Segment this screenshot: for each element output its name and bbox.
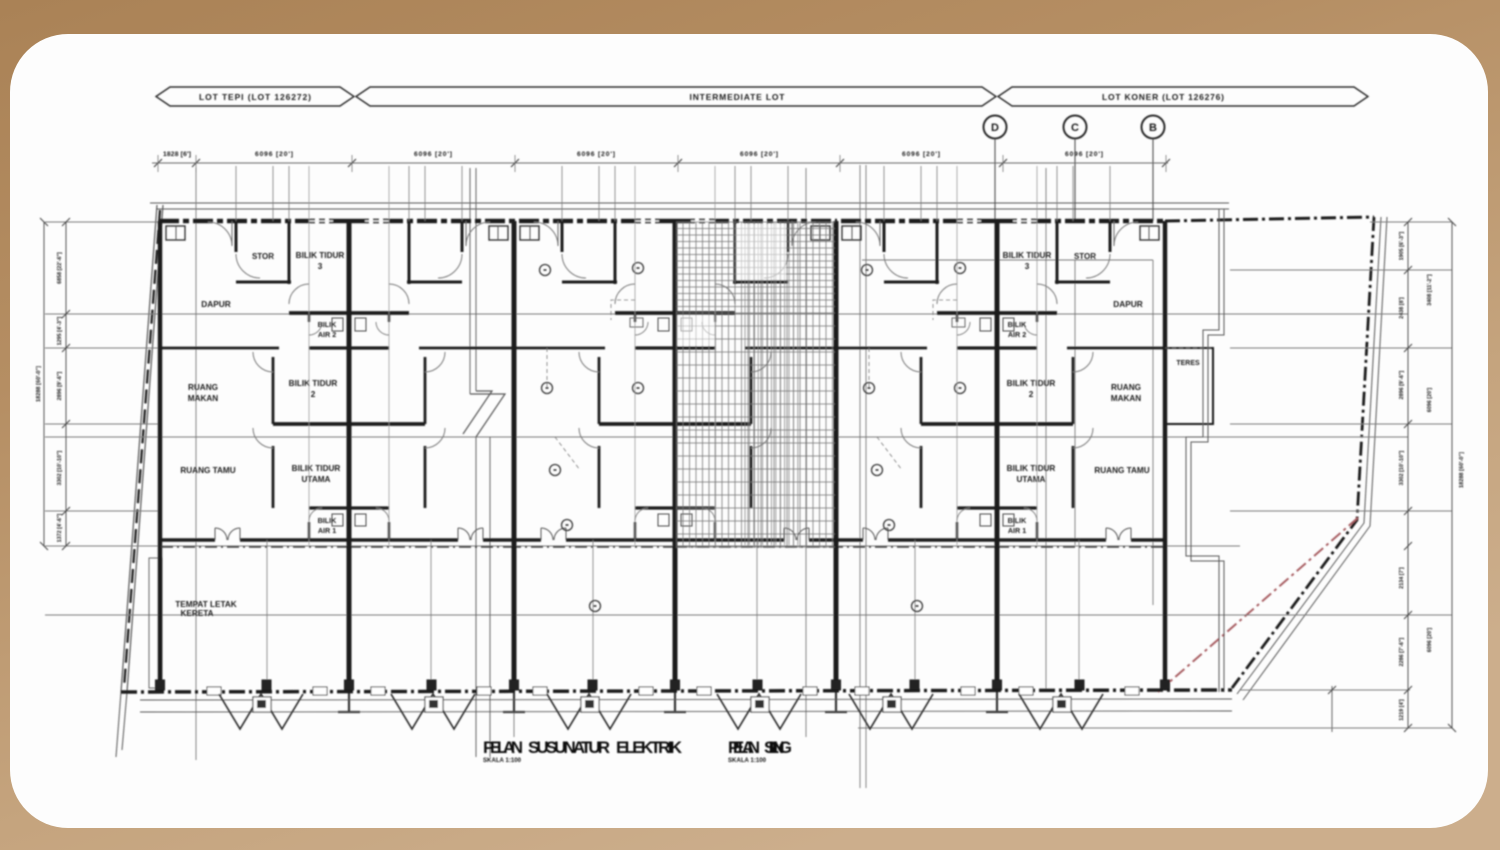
- svg-text:KERETA: KERETA: [180, 609, 213, 618]
- svg-text:6096 [20']: 6096 [20']: [740, 151, 778, 158]
- svg-text:1219 [4']: 1219 [4']: [1399, 699, 1405, 721]
- svg-text:UTAMA: UTAMA: [302, 475, 331, 484]
- svg-text:DAPUR: DAPUR: [1113, 299, 1143, 309]
- svg-text:SKALA 1:100: SKALA 1:100: [483, 758, 522, 764]
- svg-text:6096 [20']: 6096 [20']: [1065, 151, 1103, 158]
- svg-text:AIR 2: AIR 2: [318, 330, 336, 339]
- svg-text:BILIK TIDUR: BILIK TIDUR: [1007, 379, 1056, 388]
- svg-text:1295 [4'-3"]: 1295 [4'-3"]: [57, 316, 63, 345]
- svg-text:2: 2: [1029, 390, 1034, 399]
- svg-text:BILIK: BILIK: [1008, 516, 1028, 525]
- svg-text:PELAN: PELAN: [483, 738, 523, 757]
- svg-text:BILIK TIDUR: BILIK TIDUR: [289, 379, 338, 388]
- svg-text:2438 [8']: 2438 [8']: [1399, 297, 1405, 319]
- svg-text:3302 [10'-10"]: 3302 [10'-10"]: [1399, 450, 1405, 485]
- svg-text:1372 [4'-6"]: 1372 [4'-6"]: [57, 513, 63, 542]
- svg-text:6096 [20']: 6096 [20']: [902, 151, 940, 158]
- svg-text:6096 [20']: 6096 [20']: [1427, 388, 1433, 413]
- svg-text:3: 3: [1025, 262, 1030, 271]
- svg-text:B: B: [1149, 122, 1157, 134]
- svg-text:SKALA 1:100: SKALA 1:100: [728, 758, 767, 764]
- svg-text:AIR 1: AIR 1: [1008, 526, 1026, 535]
- svg-text:LOT TEPI (LOT 126272): LOT TEPI (LOT 126272): [199, 92, 311, 102]
- svg-text:3302 [10'-10"]: 3302 [10'-10"]: [57, 450, 63, 485]
- svg-text:2: 2: [311, 390, 316, 399]
- svg-text:2134 [7']: 2134 [7']: [1399, 567, 1405, 589]
- svg-text:STOR: STOR: [1074, 252, 1096, 261]
- svg-text:RUANG: RUANG: [1111, 383, 1141, 392]
- svg-text:1828 [6']: 1828 [6']: [163, 151, 191, 158]
- svg-text:ELEKTRIK: ELEKTRIK: [616, 738, 683, 757]
- svg-text:RUANG TAMU: RUANG TAMU: [180, 466, 235, 475]
- svg-text:2896 [9'-6"]: 2896 [9'-6"]: [1399, 370, 1405, 399]
- svg-text:2896 [9'-6"]: 2896 [9'-6"]: [57, 371, 63, 400]
- svg-text:SILING: SILING: [764, 738, 792, 757]
- svg-text:D: D: [991, 122, 999, 134]
- svg-text:BILIK TIDUR: BILIK TIDUR: [292, 464, 341, 473]
- svg-text:C: C: [1071, 122, 1079, 134]
- svg-text:RUANG: RUANG: [188, 383, 218, 392]
- svg-text:TEMPAT LETAK: TEMPAT LETAK: [175, 600, 236, 609]
- svg-text:BILIK: BILIK: [318, 516, 338, 525]
- svg-text:BILIK TIDUR: BILIK TIDUR: [1003, 251, 1052, 260]
- svg-text:INTERMEDIATE LOT: INTERMEDIATE LOT: [690, 92, 786, 102]
- svg-text:6096 [20']: 6096 [20']: [577, 151, 615, 158]
- svg-text:LOT KONER (LOT 126276): LOT KONER (LOT 126276): [1102, 92, 1224, 102]
- svg-text:18288 [60'-0"]: 18288 [60'-0"]: [36, 366, 42, 402]
- svg-text:AIR 2: AIR 2: [1008, 330, 1026, 339]
- svg-text:6096 [20']: 6096 [20']: [414, 151, 452, 158]
- svg-text:STOR: STOR: [252, 252, 274, 261]
- svg-text:UTAMA: UTAMA: [1017, 475, 1046, 484]
- svg-text:BILIK: BILIK: [1008, 320, 1028, 329]
- svg-text:RUANG TAMU: RUANG TAMU: [1094, 466, 1149, 475]
- svg-text:18288 [60'-0"]: 18288 [60'-0"]: [1459, 452, 1465, 488]
- svg-text:1905 [6'-3"]: 1905 [6'-3"]: [1399, 231, 1405, 260]
- svg-text:AIR 1: AIR 1: [318, 526, 336, 535]
- svg-text:3408 [11'-2"]: 3408 [11'-2"]: [1427, 274, 1433, 306]
- svg-text:MAKAN: MAKAN: [188, 394, 219, 403]
- svg-text:SUSUNATUR: SUSUNATUR: [528, 738, 610, 757]
- svg-text:TERES: TERES: [1176, 360, 1200, 367]
- svg-text:BILIK TIDUR: BILIK TIDUR: [296, 251, 345, 260]
- svg-text:PELAN: PELAN: [728, 738, 760, 757]
- svg-text:MAKAN: MAKAN: [1111, 394, 1142, 403]
- svg-text:6096 [20']: 6096 [20']: [255, 151, 293, 158]
- svg-text:6096 [20']: 6096 [20']: [1427, 628, 1433, 653]
- svg-text:BILIK TIDUR: BILIK TIDUR: [1007, 464, 1056, 473]
- svg-text:DAPUR: DAPUR: [201, 299, 231, 309]
- svg-text:BILIK: BILIK: [318, 320, 338, 329]
- svg-text:6858 [22'-6"]: 6858 [22'-6"]: [57, 252, 63, 284]
- svg-text:2286 [7'-6"]: 2286 [7'-6"]: [1399, 637, 1405, 666]
- svg-text:3: 3: [318, 262, 323, 271]
